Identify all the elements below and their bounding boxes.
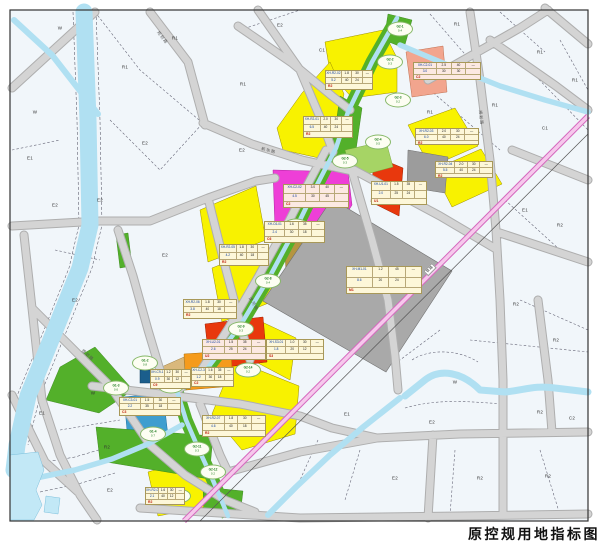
parcel-navy	[140, 370, 154, 383]
parcel-gray-small	[407, 150, 448, 193]
land-use-map	[0, 0, 605, 552]
pond	[44, 496, 60, 514]
map-caption: 原控规用地指标图	[462, 524, 600, 544]
plan-map-page: R1R1R1E2E1WWE2E2E2C1R1R1R1R1R1C1E1R2R2R2…	[0, 0, 605, 552]
